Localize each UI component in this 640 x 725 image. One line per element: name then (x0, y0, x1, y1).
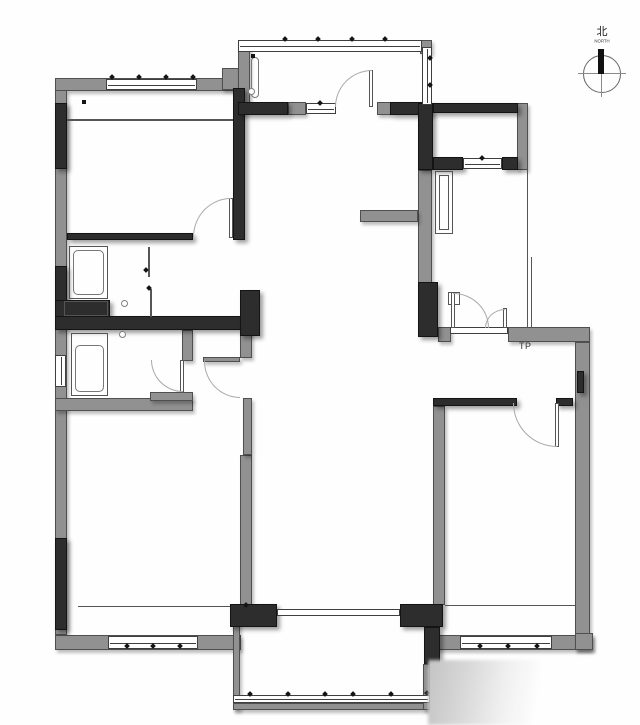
window (106, 79, 197, 90)
wall-segment (377, 102, 391, 115)
wall-segment-dark (55, 316, 252, 330)
interior-line (67, 119, 233, 121)
wall-segment-dark (433, 398, 517, 406)
wall-segment-dark (433, 157, 463, 170)
window (55, 355, 66, 387)
wall-segment (360, 210, 418, 222)
wall-segment-dark (55, 538, 67, 630)
wall-segment-dark (55, 266, 67, 302)
door-swing-arc (204, 361, 240, 398)
threshold-window (277, 609, 400, 616)
wall-segment-dark (55, 103, 67, 169)
drain-circle (119, 331, 126, 338)
door-swing-arc (485, 309, 505, 328)
wall-segment (150, 392, 193, 401)
wall-segment-dark (230, 604, 277, 627)
wall-segment-dark (240, 290, 260, 336)
marker-dot (82, 100, 86, 104)
wall-segment (243, 398, 252, 455)
wall-segment-dark (418, 282, 438, 337)
floor-plan-page: TP 北 NORTH (0, 0, 640, 725)
interior-line (78, 606, 230, 607)
window (233, 695, 430, 703)
wall-segment-dark (502, 157, 518, 170)
fixture-outline (64, 301, 108, 316)
wall-segment-dark (238, 102, 288, 115)
door-swing-arc (193, 198, 231, 237)
wall-segment-dark (67, 233, 193, 240)
drain-circle (121, 300, 128, 307)
wall-segment-dark (400, 604, 443, 627)
door-swing-arc (453, 293, 489, 328)
fixture-inner (73, 250, 104, 295)
wall-segment-dark (577, 371, 584, 393)
wall-segment (517, 103, 528, 170)
drain-circle (248, 88, 255, 95)
interior-line (445, 605, 575, 606)
compass-north-word: NORTH (583, 40, 620, 44)
door-swing-arc (513, 403, 557, 447)
north-compass-icon: 北 NORTH (576, 26, 628, 100)
wall-segment-dark (424, 627, 440, 664)
interior-line (527, 170, 528, 327)
wall-segment (288, 102, 306, 115)
wall-segment (418, 170, 432, 283)
door-swing-arc (335, 70, 372, 107)
interior-line (531, 257, 532, 327)
wall-segment (433, 406, 445, 605)
interior-line (148, 247, 150, 277)
wall-segment (233, 703, 430, 710)
wall-segment-dark (433, 103, 518, 113)
tp-label: TP (519, 341, 532, 351)
compass-north-char: 北 (576, 26, 628, 38)
interior-line (150, 289, 152, 317)
door-swing-arc (151, 360, 183, 392)
fixture-inner (75, 345, 104, 392)
threshold-window (450, 327, 508, 334)
watermark (428, 660, 540, 725)
wall-segment-dark (418, 103, 433, 170)
wall-segment (575, 633, 593, 650)
compass-needle (598, 49, 604, 74)
wall-segment (240, 455, 252, 606)
wall-segment (182, 330, 193, 361)
marker-dot (251, 54, 255, 58)
window (238, 40, 422, 52)
fixture-outline (439, 175, 449, 230)
wall-segment (508, 327, 590, 342)
floor-plan-drawing: TP 北 NORTH (0, 0, 640, 725)
